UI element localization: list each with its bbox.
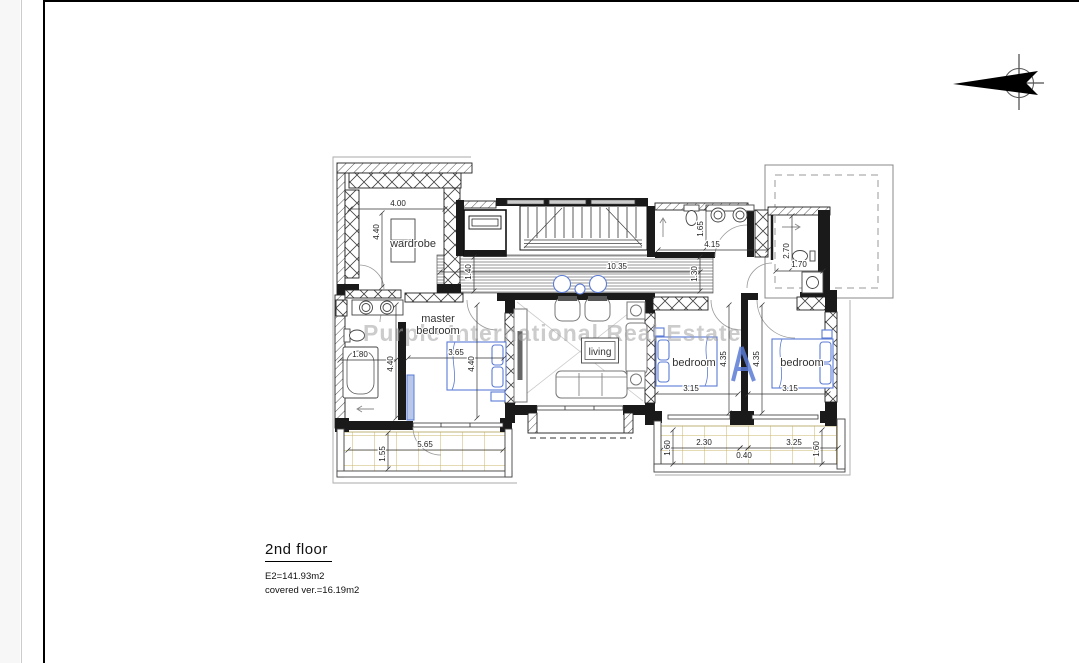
dimension-label: 1.40	[464, 264, 473, 280]
dimension-label: 4.35	[719, 351, 728, 367]
floor-plan: Purple International Real Estate 4.004.4…	[0, 0, 1079, 663]
room-label: wardrobe	[389, 238, 436, 250]
room-label: bedroom	[416, 325, 459, 337]
dimension-label: 10.35	[607, 262, 628, 271]
dimension-label: 4.40	[467, 356, 476, 372]
direction-arrow-left	[357, 406, 374, 412]
dimension-label: 4.35	[752, 351, 761, 367]
elevator	[464, 210, 506, 256]
hall-table	[575, 284, 585, 294]
armchair-back	[588, 296, 607, 301]
dimension-label: 0.40	[736, 451, 752, 460]
dimension-label: 3.15	[782, 384, 798, 393]
armchair	[555, 298, 580, 321]
dimension-label: 1.65	[696, 221, 705, 237]
staircase	[520, 206, 647, 250]
balcony-left-tiles	[344, 432, 505, 471]
direction-arrow-right	[782, 224, 800, 230]
dimension-label: 1.60	[812, 441, 821, 457]
living-projection	[528, 413, 633, 438]
title-block: 2nd floor E2=141.93m2 covered ver.=16.19…	[265, 541, 359, 596]
room-label: bedroom	[780, 357, 823, 369]
dimension-label: 1.70	[791, 260, 807, 269]
dimension-label: 1.80	[352, 350, 368, 359]
nightstand	[822, 330, 832, 338]
armchair-back	[558, 296, 577, 301]
hall-chair	[554, 276, 571, 293]
dimension-label: 3.65	[448, 348, 464, 357]
dimension-label: 4.00	[390, 199, 406, 208]
dimension-label: 1.60	[663, 440, 672, 456]
dimension-label: 4.40	[372, 224, 381, 240]
room-label: master	[421, 313, 455, 325]
dimension-label: 3.25	[786, 438, 802, 447]
armchair	[585, 298, 610, 321]
dimension-label: 1.30	[690, 266, 699, 282]
room-label: living	[589, 347, 612, 358]
sofa	[556, 371, 627, 398]
direction-arrow-up	[660, 218, 666, 237]
room-label: bedroom	[672, 357, 715, 369]
dimension-label: 2.30	[696, 438, 712, 447]
dimension-label: 1.55	[378, 446, 387, 462]
covered-area-text: covered ver.=16.19m2	[265, 585, 359, 596]
dimension-label: 4.40	[386, 356, 395, 372]
dimension-label: 3.15	[683, 384, 699, 393]
dimension-label: 2.70	[782, 243, 791, 259]
floor-title: 2nd floor	[265, 541, 332, 562]
area-text: E2=141.93m2	[265, 571, 359, 582]
sliding-door-panel	[407, 375, 414, 420]
hall-chair	[590, 276, 607, 293]
dimension-label: 5.65	[417, 440, 433, 449]
drawing-sheet: Purple International Real Estate 4.004.4…	[0, 0, 1079, 663]
bed-bench	[491, 392, 505, 401]
dimension-label: 4.15	[704, 240, 720, 249]
